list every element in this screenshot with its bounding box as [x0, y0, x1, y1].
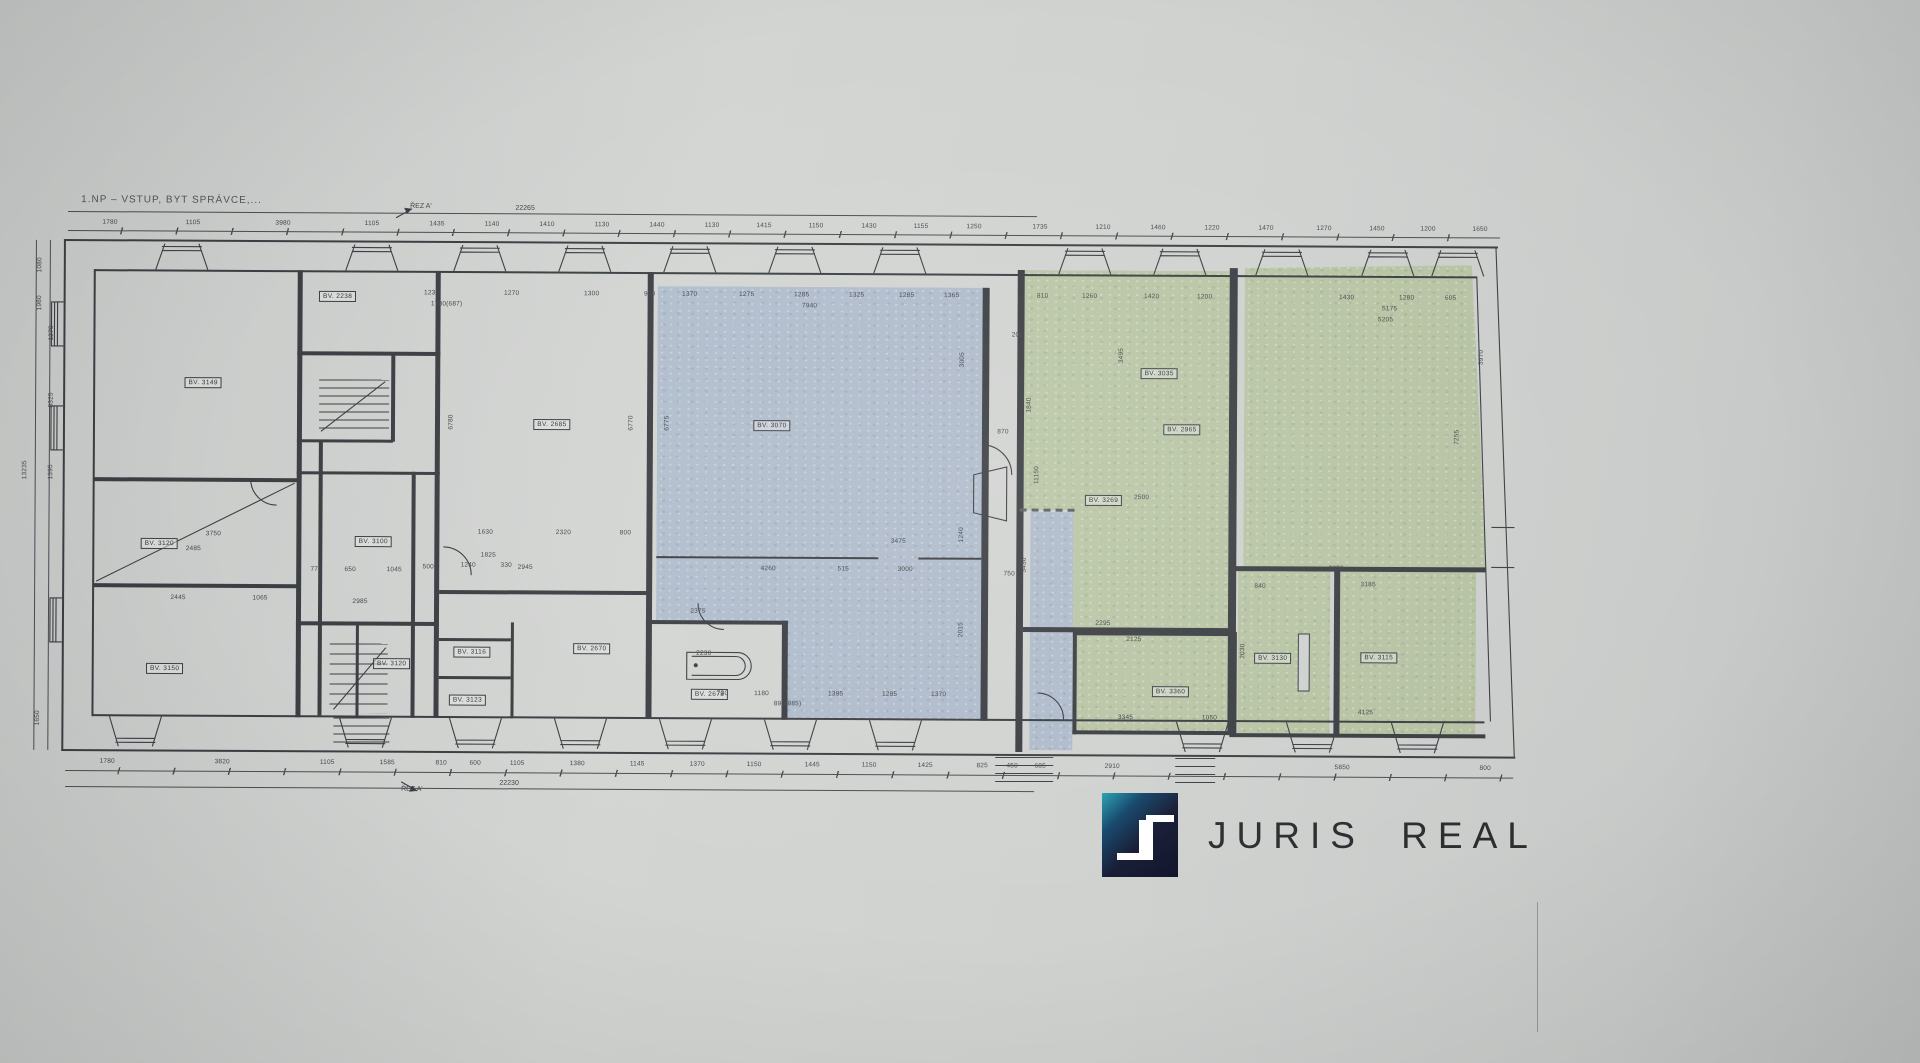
dimension-text: 1650	[1472, 226, 1487, 233]
dimension-text: 450	[1006, 762, 1017, 769]
dimension-text: 1470	[1258, 225, 1273, 232]
room-area-label: BV. 3070	[753, 420, 790, 431]
section-mark-bottom: ŘEZ A'	[401, 786, 423, 793]
dimension-text: 1440	[649, 222, 664, 229]
dimension-text: 1285	[899, 292, 914, 299]
wall-segment	[645, 272, 653, 719]
dimension-text: 650	[344, 566, 355, 573]
dimension-text: 1200	[1197, 293, 1212, 300]
room-area-label: BV. 2685	[533, 419, 570, 430]
logo-bracket-left-icon	[1117, 820, 1146, 860]
wall-segment	[391, 354, 395, 442]
floorplan-photo: 1.NP – VSTUP, BYT SPRÁVCE,... 22265 2223…	[0, 0, 1920, 1063]
dimension-text: 1250	[966, 223, 981, 230]
dimension-text: 2125	[1126, 636, 1141, 643]
dimension-text: 1370	[931, 691, 946, 698]
floorplan-drawing: 1.NP – VSTUP, BYT SPRÁVCE,... 22265 2223…	[0, 0, 1920, 1063]
overall-dim-bottom: 22230	[499, 780, 519, 787]
dimension-text: 1105	[186, 219, 201, 226]
dim-line-bottom-overall	[65, 786, 1034, 792]
dimension-text: 1105	[510, 760, 525, 767]
dimension-text: 2295	[1095, 620, 1110, 627]
room-area-label: BV. 3120	[141, 538, 178, 549]
wall-segment	[439, 638, 511, 641]
wall-segment	[297, 351, 440, 356]
dimension-text: 2650	[1329, 565, 1344, 572]
dimension-text: 800	[620, 529, 631, 536]
dimension-text: 5325	[48, 392, 55, 407]
dimension-text: 1410	[539, 221, 554, 228]
dimension-text: 950	[644, 291, 655, 298]
dimension-text: 1140	[485, 221, 500, 228]
dimension-text: 810	[435, 759, 446, 766]
dimension-text: 1150	[747, 761, 762, 768]
dimension-text: 2910	[1105, 763, 1120, 770]
dimension-text: 1780(687)	[431, 300, 462, 307]
dimension-text: 3475	[891, 538, 906, 545]
dimension-text: 5205	[1378, 316, 1393, 323]
bathtub-drain-icon	[694, 663, 698, 667]
dimension-text: 1420	[1144, 293, 1159, 300]
dimension-text: 4260	[761, 565, 776, 572]
dimension-text: 750	[1003, 570, 1014, 577]
dimension-text: 1105	[365, 220, 380, 227]
dimension-text: 1180	[754, 690, 769, 697]
dimension-text: 1270	[48, 325, 55, 340]
stairs-layer	[1, 0, 1920, 10]
dimension-text: 840	[1254, 583, 1265, 590]
dimension-text: 3185	[1361, 581, 1376, 588]
pillar-slot	[1298, 633, 1310, 691]
dimension-text: 605	[1445, 295, 1456, 302]
dimension-text: 870	[997, 428, 1008, 435]
wall-segment	[64, 239, 1498, 249]
dimension-text: 1370	[682, 291, 697, 298]
dimension-text: 1200	[1420, 226, 1435, 233]
wall-segment	[1232, 632, 1237, 735]
room-area-label: BV. 2670	[573, 643, 610, 654]
dimension-text: 3750	[206, 530, 221, 537]
wall-segment	[1015, 270, 1025, 752]
dimension-text: 6775	[663, 415, 670, 430]
dimension-text: 1270	[1316, 225, 1331, 232]
dimension-text: 2375	[690, 608, 705, 615]
dimension-text: 1045	[387, 566, 402, 573]
dimension-text: 1415	[756, 222, 771, 229]
wall-segment	[1072, 631, 1077, 734]
wall-segment	[1229, 733, 1485, 738]
dimension-text: 6770	[627, 415, 634, 430]
dimension-text: 1430	[1339, 294, 1354, 301]
dimension-text: 1150	[862, 762, 877, 769]
dimension-text: 500	[422, 563, 433, 570]
dimension-text: 1825	[481, 552, 496, 559]
dim-line-left1	[33, 240, 37, 750]
dimension-text: 1105	[320, 759, 335, 766]
dimension-text: 825	[976, 762, 987, 769]
dimension-text: 1285	[794, 291, 809, 298]
dimension-text: 1325	[849, 292, 864, 299]
juris-real-wordmark: JURIS REAL	[1208, 815, 1538, 857]
dimension-text: 1240	[461, 562, 476, 569]
dimension-text: 2945	[518, 564, 533, 571]
dimension-text: 2015	[957, 622, 964, 637]
dimension-text: 3820	[215, 758, 230, 765]
wall-segment	[61, 749, 1515, 759]
dimension-text: 2985	[352, 598, 367, 605]
dimension-text: 600	[469, 760, 480, 767]
walls-layer	[1, 0, 1920, 10]
dimension-text: 3430	[1021, 557, 1028, 572]
dimension-text: 1230	[424, 289, 439, 296]
dimension-text: 730	[717, 690, 728, 697]
dimension-text: 3000	[898, 566, 913, 573]
dimension-text: 1130	[705, 222, 720, 229]
dimension-text: 7255	[1453, 430, 1460, 445]
dimension-text: 2500	[1134, 494, 1149, 501]
dimension-text: 1780	[102, 219, 117, 226]
dimension-text: 1430	[861, 223, 876, 230]
dimension-text: 1735	[1032, 224, 1047, 231]
wall-segment	[439, 676, 511, 679]
dimension-text: 1080	[36, 257, 43, 272]
room-area-label: BV. 3120	[373, 658, 410, 669]
dim-ticks-bottom	[65, 767, 1513, 782]
wall-segment	[410, 472, 415, 718]
wall-segment	[297, 439, 393, 443]
room-labels-layer: BV. 3149BV. 2238BV. 3120BV. 3150BV. 2685…	[1, 0, 1920, 10]
dimension-text: 2320	[556, 529, 571, 536]
room-area-label: BV. 3116	[453, 647, 490, 658]
juris-real-logo-mark-icon	[1102, 793, 1178, 877]
plan-title: 1.NP – VSTUP, BYT SPRÁVCE,...	[81, 194, 262, 206]
dimension-text: 13235	[21, 460, 28, 479]
dimension-text: 1130	[595, 221, 610, 228]
wall-segment	[61, 239, 66, 751]
room-area-label: BV. 3115	[1360, 652, 1397, 663]
dimension-text: 1450	[1369, 225, 1384, 232]
dimension-text: 515	[837, 566, 848, 573]
dimension-text: 1270	[504, 290, 519, 297]
dimension-text: 1445	[805, 761, 820, 768]
juris-real-logo: JURIS REAL	[1102, 793, 1522, 883]
room-area-label: BV. 3150	[146, 663, 183, 674]
dimension-text: 1150	[809, 222, 824, 229]
wall-segment	[646, 620, 788, 625]
wall-segment	[510, 622, 514, 718]
room-area-label: BV. 3123	[449, 695, 486, 706]
room-area-label: BV. 3100	[355, 536, 392, 547]
dimension-text: 2230	[696, 650, 711, 657]
dimension-text: 810	[1037, 293, 1048, 300]
wall-segment	[317, 441, 322, 715]
wall-segment	[1072, 730, 1235, 735]
dimension-text: 770	[310, 566, 321, 573]
dimension-text: 1425	[918, 762, 933, 769]
stair-treads	[329, 643, 387, 713]
dimension-text: 1155	[914, 223, 929, 230]
dimension-text: 4125	[1358, 709, 1373, 716]
dimension-text: 1435	[429, 220, 444, 227]
wall-segment	[980, 288, 989, 721]
dimension-text: 1370	[690, 761, 705, 768]
dimension-text: 3970	[1478, 350, 1485, 365]
wall-segment	[91, 269, 95, 716]
section-mark-top: ŘEZ A'	[410, 203, 432, 210]
wall-segment	[1073, 631, 1236, 636]
dimension-text: 2030	[1239, 644, 1246, 659]
dimension-text: 1065	[252, 594, 267, 601]
dimension-text: 1630	[478, 529, 493, 536]
dimension-text: 1210	[1095, 224, 1110, 231]
room-area-label: BV. 2965	[1163, 424, 1200, 435]
highlight-green-room-2	[1243, 264, 1488, 567]
dimension-text: 1240	[958, 527, 965, 542]
dimension-text: 200	[1012, 331, 1023, 338]
wall-segment	[433, 271, 440, 718]
dimension-text: 11150	[1033, 466, 1040, 484]
dimension-text: 1840	[1026, 397, 1033, 412]
dimension-text: 1145	[630, 760, 645, 767]
dimension-text: 1460	[1150, 224, 1165, 231]
wall-segment	[918, 557, 981, 559]
wall-segment	[295, 270, 302, 717]
dimension-text: 3345	[1118, 714, 1133, 721]
dimension-text: 1280	[1399, 294, 1414, 301]
wall-segment	[439, 590, 649, 595]
dimension-text: 1395	[47, 464, 54, 479]
dimension-text: 5850	[1335, 764, 1350, 771]
stair-treads	[1175, 758, 1215, 784]
dimension-text: 1650	[34, 710, 41, 725]
dimension-text: 3005	[959, 352, 966, 367]
dimension-text: 1365	[944, 292, 959, 299]
dimension-text: 2485	[186, 545, 201, 552]
dimension-text: 685	[1034, 763, 1045, 770]
wall-segment	[93, 583, 298, 588]
dimension-text-layer: 1780110539801105143511401410113014401130…	[1, 0, 1920, 10]
dimension-text: 1380	[570, 760, 585, 767]
dimension-text: 1395	[828, 690, 843, 697]
dimension-text: 3495	[1118, 348, 1125, 363]
dimension-text: 330	[501, 562, 512, 569]
room-area-label: BV. 3269	[1085, 495, 1122, 506]
stair-treads	[333, 717, 389, 743]
dimension-text: 1980	[36, 295, 43, 310]
stair-treads	[995, 757, 1053, 787]
dimension-text: 1050	[1202, 714, 1217, 721]
wall-segment	[94, 477, 299, 482]
dimension-text: 7940	[802, 302, 817, 309]
stair-treads	[319, 379, 389, 433]
dimension-text: 5175	[1382, 305, 1397, 312]
dim-line-top-overall	[68, 211, 1037, 217]
dimension-text: 3980	[275, 220, 290, 227]
room-area-label: BV. 2238	[319, 291, 356, 302]
dimension-text: 1275	[739, 291, 754, 298]
room-area-label: BV. 3149	[184, 377, 221, 388]
dimension-text: 1260	[1082, 293, 1097, 300]
dimension-text: 1285	[882, 691, 897, 698]
dimension-text: 2445	[170, 594, 185, 601]
logo-bracket-right-icon	[1146, 815, 1174, 860]
dim-line-left2	[47, 240, 51, 750]
dimension-text: 1300	[584, 290, 599, 297]
room-area-label: BV. 3130	[1254, 653, 1291, 664]
dimension-text: 1220	[1204, 224, 1219, 231]
room-area-label: BV. 3035	[1141, 368, 1178, 379]
overall-dim-top: 22265	[515, 205, 535, 212]
dimension-text: 890(885)	[774, 700, 802, 707]
dimension-text: 800	[1479, 765, 1490, 772]
room-area-label: BV. 3360	[1152, 686, 1189, 697]
dimension-text: 1585	[380, 759, 395, 766]
dimension-text: 1780	[100, 758, 115, 765]
dimension-text: 6780	[447, 414, 454, 429]
paper-crease-line	[1537, 902, 1538, 1032]
wall-segment	[1333, 567, 1340, 737]
